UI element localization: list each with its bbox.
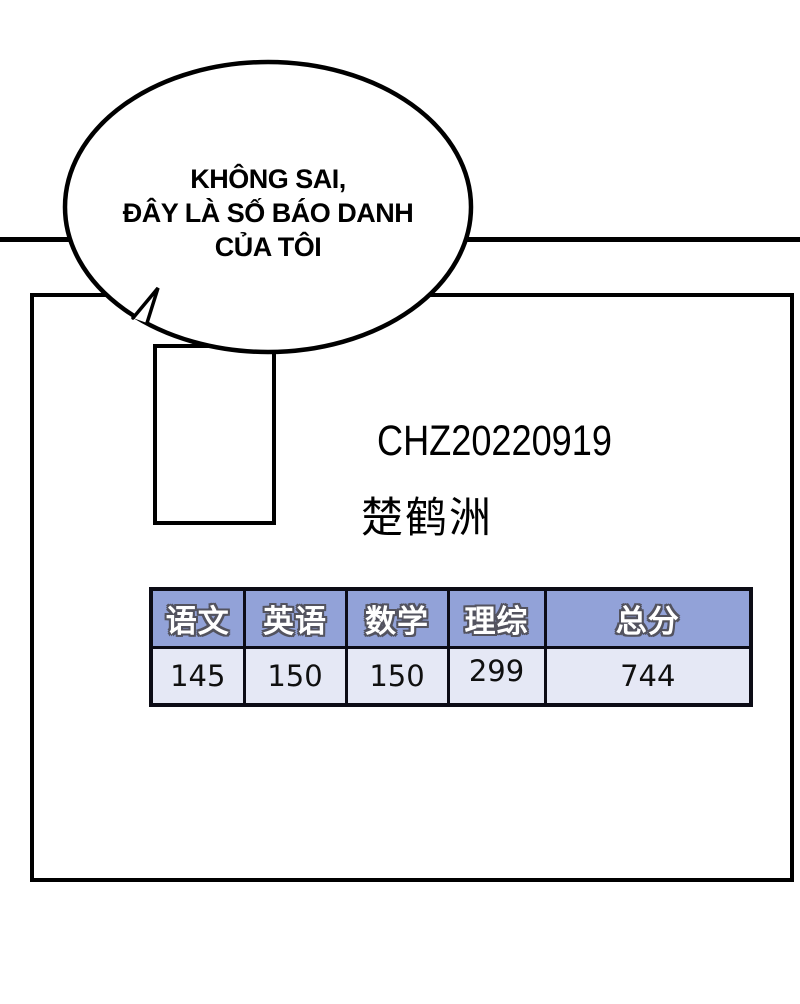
student-name: 楚鹤洲 [361,494,493,542]
score-value-cell: 145 [151,648,244,706]
exam-number: CHZ20220919 [377,420,612,463]
score-header-cell: 理综 [448,589,545,648]
score-header-cell: 语文 [151,589,244,648]
speech-bubble-text: KHÔNG SAI, ĐÂY LÀ SỐ BÁO DANH CỦA TÔI [58,162,478,264]
speech-line-3: CỦA TÔI [58,230,478,264]
score-header-cell: 英语 [244,589,346,648]
score-value-cell: 744 [545,648,751,706]
comic-panel: CHZ20220919 楚鹤洲 语文 英语 数学 理综 总分 145 150 1… [0,0,800,1004]
score-header-cell: 数学 [346,589,448,648]
speech-line-1: KHÔNG SAI, [58,162,478,196]
photo-placeholder [153,344,276,525]
score-table-value-row: 145 150 150 299 744 [151,648,751,706]
score-table: 语文 英语 数学 理综 总分 145 150 150 299 744 [149,587,753,707]
score-value-cell: 150 [244,648,346,706]
speech-line-2: ĐÂY LÀ SỐ BÁO DANH [58,196,478,230]
score-table-header-row: 语文 英语 数学 理综 总分 [151,589,751,648]
score-value-cell: 299 [448,648,545,706]
score-header-cell: 总分 [545,589,751,648]
score-value-cell: 150 [346,648,448,706]
